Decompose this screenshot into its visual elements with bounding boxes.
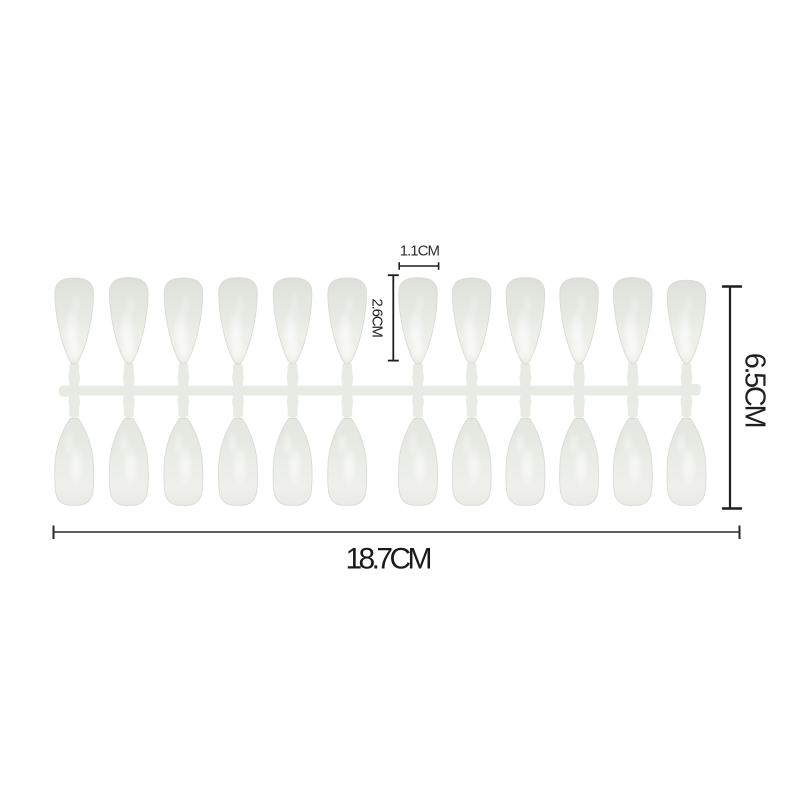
svg-text:2.6CM: 2.6CM <box>369 299 386 338</box>
svg-text:6.5CM: 6.5CM <box>739 353 771 427</box>
svg-text:1.1CM: 1.1CM <box>400 242 440 259</box>
svg-text:18.7CM: 18.7CM <box>345 543 430 576</box>
